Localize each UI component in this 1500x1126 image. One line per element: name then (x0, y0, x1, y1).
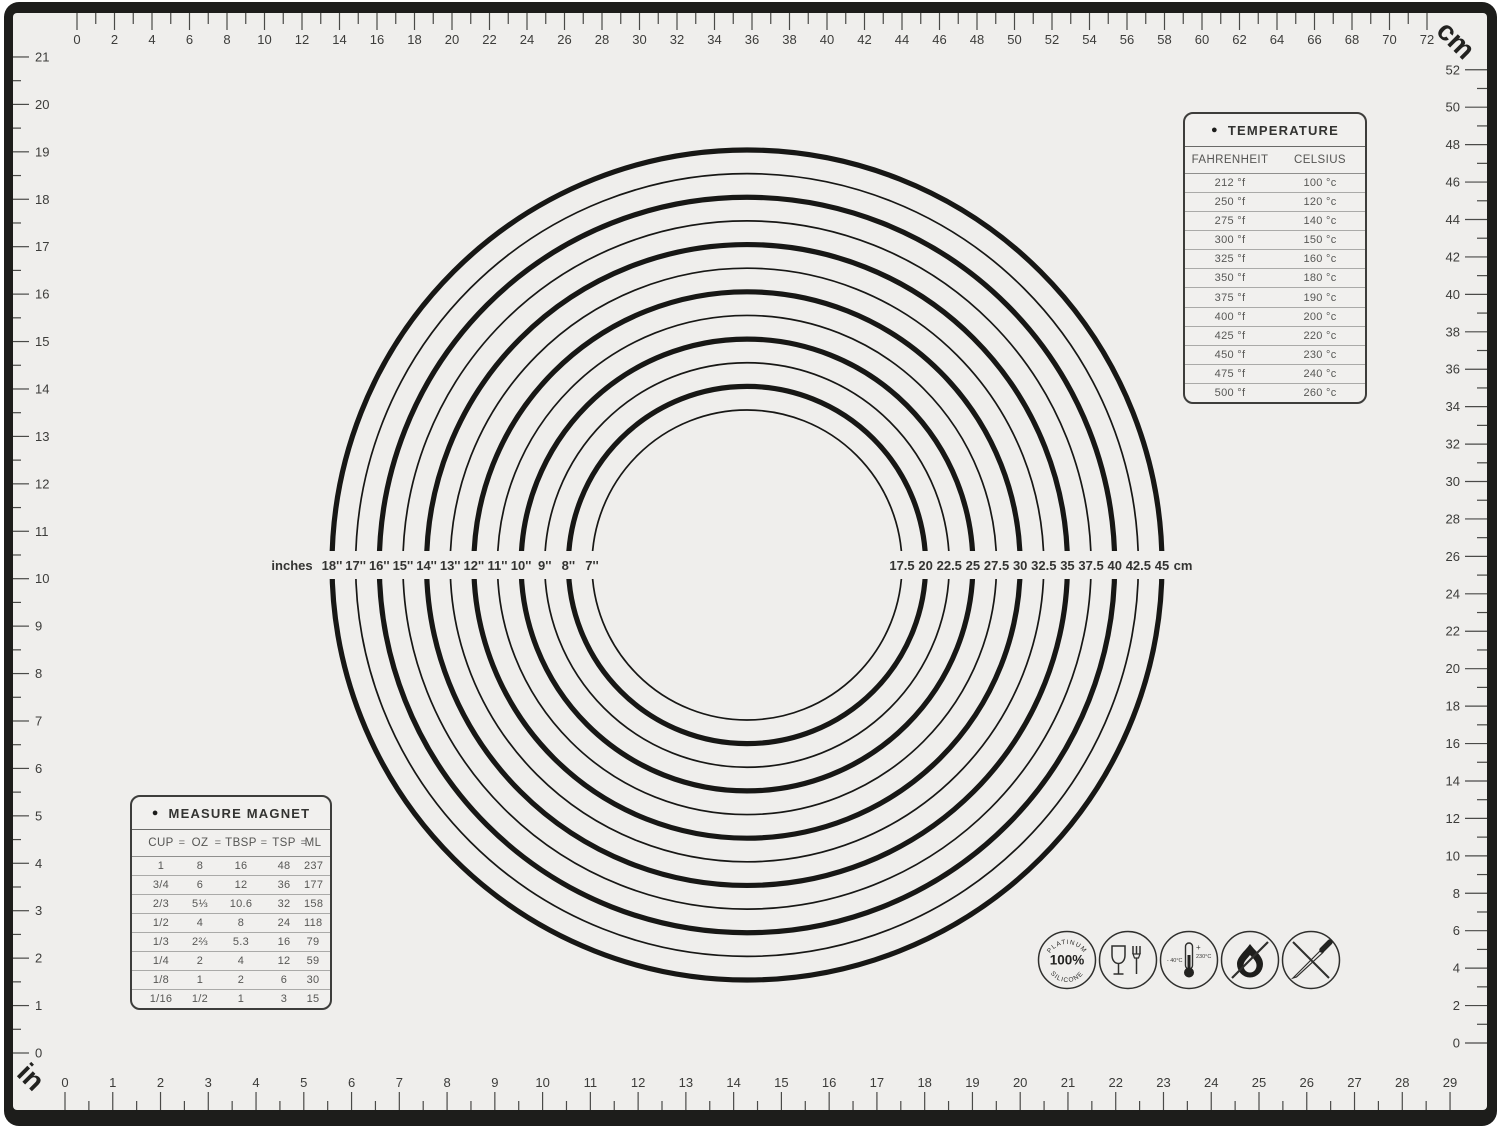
cm-size-label: 35 (1060, 558, 1074, 573)
measure-panel-title: ● MEASURE MAGNET (132, 797, 330, 830)
bullet-icon: ● (1211, 125, 1219, 136)
ruler-number: 44 (895, 32, 909, 47)
table-cell: 3 (264, 993, 304, 1005)
table-cell: 177 (304, 879, 323, 891)
inch-size-label: 12'' (463, 558, 484, 573)
table-cell: 6 (264, 974, 304, 986)
cm-size-label: 42.5 (1126, 558, 1151, 573)
right-ruler: 0246810121416182022242628303234363840424… (1446, 62, 1487, 1050)
ruler-number: 68 (1345, 32, 1359, 47)
table-row: 2/35⅓10.632158 (132, 894, 330, 913)
ruler-number: 21 (35, 49, 49, 64)
ruler-number: 40 (820, 32, 834, 47)
inch-size-label: 15'' (393, 558, 414, 573)
ruler-number: 46 (932, 32, 946, 47)
table-cell: 260 °c (1275, 387, 1365, 399)
max-temp-label: 230°C (1196, 954, 1211, 960)
ruler-number: 20 (35, 97, 49, 112)
ruler-number: 14 (726, 1075, 740, 1090)
table-cell: 16 (218, 860, 264, 872)
inch-size-label: 16'' (369, 558, 390, 573)
ruler-number: 42 (1446, 249, 1460, 264)
table-cell: 5⅓ (182, 898, 218, 910)
ruler-number: 42 (857, 32, 871, 47)
ruler-number: 11 (584, 1075, 598, 1090)
cm-size-label: 45 (1155, 558, 1169, 573)
temperature-range-icon: - 40°C + 230°C (1161, 932, 1218, 989)
table-cell: 4 (218, 955, 264, 967)
table-cell: 2 (182, 955, 218, 967)
table-cell: 1 (218, 993, 264, 1005)
ruler-number: 6 (348, 1075, 355, 1090)
ruler-number: 70 (1382, 32, 1396, 47)
ruler-number: 12 (295, 32, 309, 47)
ruler-number: 23 (1156, 1075, 1170, 1090)
ruler-number: 34 (1446, 399, 1460, 414)
ruler-number: 18 (917, 1075, 931, 1090)
table-row: 400 °f200 °c (1185, 307, 1365, 326)
table-row: 1/24824118 (132, 913, 330, 932)
ruler-number: 16 (370, 32, 384, 47)
measure-magnet-panel: ● MEASURE MAGNET CUP OZ TBSP TSP ML = = … (130, 795, 332, 1010)
ruler-number: 28 (1446, 511, 1460, 526)
table-row: 212 °f100 °c (1185, 174, 1365, 192)
table-cell: 24 (264, 917, 304, 929)
table-cell: 425 °f (1185, 330, 1275, 342)
cm-suffix-label: cm (1174, 558, 1193, 573)
ruler-number: 20 (1013, 1075, 1027, 1090)
ruler-number: 6 (35, 761, 42, 776)
ruler-number: 14 (332, 32, 346, 47)
platinum-silicone-badge-icon: PLATINUM 100% SILICONE (1039, 932, 1096, 989)
ruler-number: 1 (109, 1075, 116, 1090)
table-cell: 500 °f (1185, 387, 1275, 399)
ruler-number: 15 (35, 334, 49, 349)
ruler-number: 8 (443, 1075, 450, 1090)
ruler-number: 4 (35, 856, 42, 871)
temperature-table: 212 °f100 °c250 °f120 °c275 °f140 °c300 … (1185, 174, 1365, 402)
temperature-table-header: FAHRENHEIT CELSIUS (1185, 147, 1365, 174)
inch-size-label: 7'' (585, 558, 598, 573)
table-cell: 118 (304, 917, 322, 929)
ruler-number: 6 (186, 32, 193, 47)
cm-size-label: 20 (918, 558, 932, 573)
cm-corner-label: cm (1431, 15, 1482, 66)
ruler-number: 2 (157, 1075, 164, 1090)
table-row: 3/461236177 (132, 875, 330, 894)
table-cell: 2/3 (140, 898, 182, 910)
table-cell: 190 °c (1275, 292, 1365, 304)
table-row: 1/32⅔5.31679 (132, 932, 330, 951)
table-row: 1/4241259 (132, 951, 330, 970)
table-cell: 475 °f (1185, 368, 1275, 380)
table-cell: 12 (218, 879, 264, 891)
table-cell: 12 (264, 955, 304, 967)
table-cell: 160 °c (1275, 253, 1365, 265)
no-knife-icon (1283, 932, 1340, 989)
ruler-number: 36 (1446, 362, 1460, 377)
table-cell: 36 (264, 879, 304, 891)
table-cell: 212 °f (1185, 177, 1275, 189)
cup-column-header: CUP (140, 837, 182, 849)
ruler-number: 16 (1446, 736, 1460, 751)
table-cell: 5.3 (218, 936, 264, 948)
ruler-number: 18 (407, 32, 421, 47)
ruler-number: 8 (35, 666, 42, 681)
ruler-number: 38 (1446, 324, 1460, 339)
ruler-number: 24 (1204, 1075, 1218, 1090)
ruler-number: 48 (1446, 137, 1460, 152)
ruler-number: 9 (35, 619, 42, 634)
ruler-number: 30 (1446, 474, 1460, 489)
table-cell: 3/4 (140, 879, 182, 891)
table-cell: 10.6 (218, 898, 264, 910)
table-cell: 30 (304, 974, 322, 986)
ruler-number: 16 (35, 287, 49, 302)
table-cell: 8 (218, 917, 264, 929)
ruler-number: 7 (35, 713, 42, 728)
ruler-number: 22 (1446, 624, 1460, 639)
cm-size-label: 40 (1107, 558, 1121, 573)
table-cell: 1 (182, 974, 218, 986)
ruler-number: 2 (1453, 998, 1460, 1013)
ruler-number: 16 (822, 1075, 836, 1090)
ruler-number: 26 (1300, 1075, 1314, 1090)
measure-table-header: CUP OZ TBSP TSP ML = = = = (132, 830, 330, 857)
safety-icons: PLATINUM 100% SILICONE - 40°C + 230°C (1032, 922, 1372, 998)
table-cell: 300 °f (1185, 234, 1275, 246)
tsp-column-header: TSP (264, 837, 304, 849)
table-cell: 6 (182, 879, 218, 891)
ruler-number: 10 (535, 1075, 549, 1090)
equals-sign: = (261, 837, 268, 849)
table-cell: 180 °c (1275, 272, 1365, 284)
table-cell: 158 (304, 898, 323, 910)
inch-size-label: 18'' (322, 558, 343, 573)
ruler-number: 20 (1446, 661, 1460, 676)
ruler-number: 40 (1446, 287, 1460, 302)
ruler-number: 44 (1446, 212, 1460, 227)
table-row: 181648237 (132, 857, 330, 875)
ruler-number: 9 (491, 1075, 498, 1090)
table-cell: 1/4 (140, 955, 182, 967)
ruler-number: 3 (35, 903, 42, 918)
ruler-number: 4 (1453, 961, 1460, 976)
table-cell: 1 (140, 860, 182, 872)
table-row: 425 °f220 °c (1185, 326, 1365, 345)
cm-size-label: 25 (966, 558, 980, 573)
table-cell: 8 (182, 860, 218, 872)
ruler-number: 17 (870, 1075, 884, 1090)
bottom-ruler: 0123456789101112131415161718192021222324… (61, 1075, 1457, 1110)
ruler-number: 1 (35, 998, 42, 1013)
ruler-number: 56 (1120, 32, 1134, 47)
ruler-number: 64 (1270, 32, 1284, 47)
table-cell: 1/2 (182, 993, 218, 1005)
ruler-number: 32 (670, 32, 684, 47)
ruler-number: 48 (970, 32, 984, 47)
table-cell: 237 (304, 860, 323, 872)
ruler-number: 12 (631, 1075, 645, 1090)
table-cell: 4 (182, 917, 218, 929)
ruler-number: 52 (1045, 32, 1059, 47)
table-cell: 140 °c (1275, 215, 1365, 227)
ruler-number: 5 (300, 1075, 307, 1090)
table-cell: 79 (304, 936, 322, 948)
ruler-number: 30 (632, 32, 646, 47)
ruler-number: 4 (148, 32, 155, 47)
table-cell: 1/16 (140, 993, 182, 1005)
ruler-number: 11 (35, 524, 49, 539)
equals-sign: = (215, 837, 222, 849)
ruler-number: 26 (1446, 549, 1460, 564)
table-cell: 250 °f (1185, 196, 1275, 208)
table-row: 275 °f140 °c (1185, 211, 1365, 230)
ruler-number: 58 (1157, 32, 1171, 47)
inch-size-label: 11'' (487, 558, 507, 573)
ruler-number: 54 (1082, 32, 1096, 47)
table-row: 375 °f190 °c (1185, 287, 1365, 306)
ruler-number: 3 (205, 1075, 212, 1090)
inches-prefix-label: inches (271, 558, 312, 573)
ruler-number: 0 (61, 1075, 68, 1090)
ruler-number: 10 (257, 32, 271, 47)
table-cell: 240 °c (1275, 368, 1365, 380)
ruler-number: 2 (111, 32, 118, 47)
ruler-number: 8 (223, 32, 230, 47)
ruler-number: 29 (1443, 1075, 1457, 1090)
table-cell: 230 °c (1275, 349, 1365, 361)
table-row: 475 °f240 °c (1185, 364, 1365, 383)
ruler-number: 8 (1453, 886, 1460, 901)
ruler-number: 13 (35, 429, 49, 444)
table-cell: 275 °f (1185, 215, 1275, 227)
ruler-number: 36 (745, 32, 759, 47)
ruler-number: 6 (1453, 923, 1460, 938)
inch-size-label: 10'' (511, 558, 532, 573)
table-cell: 200 °c (1275, 311, 1365, 323)
ruler-number: 0 (35, 1046, 42, 1061)
ruler-number: 12 (35, 476, 49, 491)
ruler-number: 38 (782, 32, 796, 47)
table-cell: 1/3 (140, 936, 182, 948)
bullet-icon: ● (152, 808, 160, 819)
ruler-number: 22 (1108, 1075, 1122, 1090)
table-row: 500 °f260 °c (1185, 383, 1365, 402)
fahrenheit-column-header: FAHRENHEIT (1185, 154, 1275, 166)
ruler-number: 19 (35, 144, 49, 159)
inch-size-label: 13'' (440, 558, 461, 573)
table-cell: 59 (304, 955, 322, 967)
ruler-number: 24 (520, 32, 534, 47)
ruler-number: 34 (707, 32, 721, 47)
cm-size-label: 37.5 (1078, 558, 1103, 573)
table-cell: 150 °c (1275, 234, 1365, 246)
table-cell: 2⅔ (182, 936, 218, 948)
table-row: 300 °f150 °c (1185, 230, 1365, 249)
table-row: 450 °f230 °c (1185, 345, 1365, 364)
ruler-number: 21 (1061, 1075, 1075, 1090)
hundred-percent-label: 100% (1050, 953, 1085, 968)
ruler-number: 14 (1446, 773, 1460, 788)
temperature-title-label: TEMPERATURE (1228, 123, 1339, 138)
ruler-number: 4 (252, 1075, 259, 1090)
ruler-number: 0 (73, 32, 80, 47)
ruler-number: 10 (1446, 848, 1460, 863)
ruler-number: 2 (35, 951, 42, 966)
ruler-number: 50 (1446, 100, 1460, 115)
table-row: 1/812630 (132, 970, 330, 989)
ruler-number: 28 (1395, 1075, 1409, 1090)
cm-size-label: 27.5 (984, 558, 1009, 573)
table-cell: 325 °f (1185, 253, 1275, 265)
table-cell: 1/8 (140, 974, 182, 986)
ruler-number: 52 (1446, 62, 1460, 77)
measure-table: 1816482373/4612361772/35⅓10.6321581/2482… (132, 857, 330, 1008)
silicone-arc-text: SILICONE (1049, 970, 1085, 984)
ruler-number: 66 (1307, 32, 1321, 47)
equals-sign: = (301, 837, 308, 849)
svg-text:SILICONE: SILICONE (1049, 970, 1085, 984)
table-row: 325 °f160 °c (1185, 249, 1365, 268)
table-cell: 120 °c (1275, 196, 1365, 208)
ruler-number: 27 (1347, 1075, 1361, 1090)
inch-size-label: 14'' (416, 558, 437, 573)
inch-size-label: 9'' (538, 558, 551, 573)
celsius-column-header: CELSIUS (1275, 154, 1365, 166)
ruler-number: 10 (35, 571, 49, 586)
food-safe-icon (1100, 932, 1157, 989)
ruler-number: 26 (557, 32, 571, 47)
table-cell: 48 (264, 860, 304, 872)
table-cell: 450 °f (1185, 349, 1275, 361)
ruler-number: 14 (35, 381, 49, 396)
cm-size-label: 32.5 (1031, 558, 1056, 573)
ruler-number: 19 (965, 1075, 979, 1090)
table-cell: 2 (218, 974, 264, 986)
ruler-number: 25 (1252, 1075, 1266, 1090)
no-open-flame-icon (1222, 932, 1279, 989)
oz-column-header: OZ (182, 837, 218, 849)
ruler-number: 18 (35, 192, 49, 207)
ruler-number: 15 (774, 1075, 788, 1090)
ruler-number: 18 (1446, 699, 1460, 714)
left-ruler: 0123456789101112131415161718192021 (13, 49, 49, 1060)
temperature-panel-title: ● TEMPERATURE (1185, 114, 1365, 147)
ruler-number: 5 (35, 808, 42, 823)
cm-size-label: 22.5 (937, 558, 962, 573)
ruler-number: 13 (679, 1075, 693, 1090)
table-row: 350 °f180 °c (1185, 268, 1365, 287)
table-row: 1/161/21315 (132, 989, 330, 1008)
ruler-number: 0 (1453, 1036, 1460, 1051)
ruler-number: 22 (482, 32, 496, 47)
ruler-number: 46 (1446, 175, 1460, 190)
ruler-number: 24 (1446, 586, 1460, 601)
table-cell: 220 °c (1275, 330, 1365, 342)
measure-title-label: MEASURE MAGNET (169, 806, 311, 821)
ruler-number: 12 (1446, 811, 1460, 826)
ruler-number: 60 (1195, 32, 1209, 47)
ruler-number: 62 (1232, 32, 1246, 47)
table-cell: 100 °c (1275, 177, 1365, 189)
table-cell: 350 °f (1185, 272, 1275, 284)
ruler-number: 32 (1446, 437, 1460, 452)
ruler-number: 20 (445, 32, 459, 47)
table-cell: 1/2 (140, 917, 182, 929)
table-cell: 32 (264, 898, 304, 910)
table-cell: 16 (264, 936, 304, 948)
ruler-number: 50 (1007, 32, 1021, 47)
temperature-panel: ● TEMPERATURE FAHRENHEIT CELSIUS 212 °f1… (1183, 112, 1367, 404)
equals-sign: = (179, 837, 186, 849)
plus-sign: + (1196, 943, 1201, 952)
ruler-number: 7 (396, 1075, 403, 1090)
inch-size-label: 8'' (562, 558, 575, 573)
min-temp-label: - 40°C (1167, 958, 1183, 964)
ruler-number: 28 (595, 32, 609, 47)
inch-size-label: 17'' (345, 558, 366, 573)
in-corner-label: in (11, 1057, 51, 1097)
tbsp-column-header: TBSP (218, 837, 264, 849)
table-cell: 15 (304, 993, 322, 1005)
cm-size-label: 17.5 (889, 558, 914, 573)
circle-size-labels: inches18''17''16''15''14''13''12''11''10… (262, 551, 1208, 579)
table-row: 250 °f120 °c (1185, 192, 1365, 211)
table-cell: 400 °f (1185, 311, 1275, 323)
table-cell: 375 °f (1185, 292, 1275, 304)
ruler-number: 17 (35, 239, 49, 254)
top-ruler: 0246810121416182022242628303234363840424… (73, 13, 1434, 47)
cm-size-label: 30 (1013, 558, 1027, 573)
